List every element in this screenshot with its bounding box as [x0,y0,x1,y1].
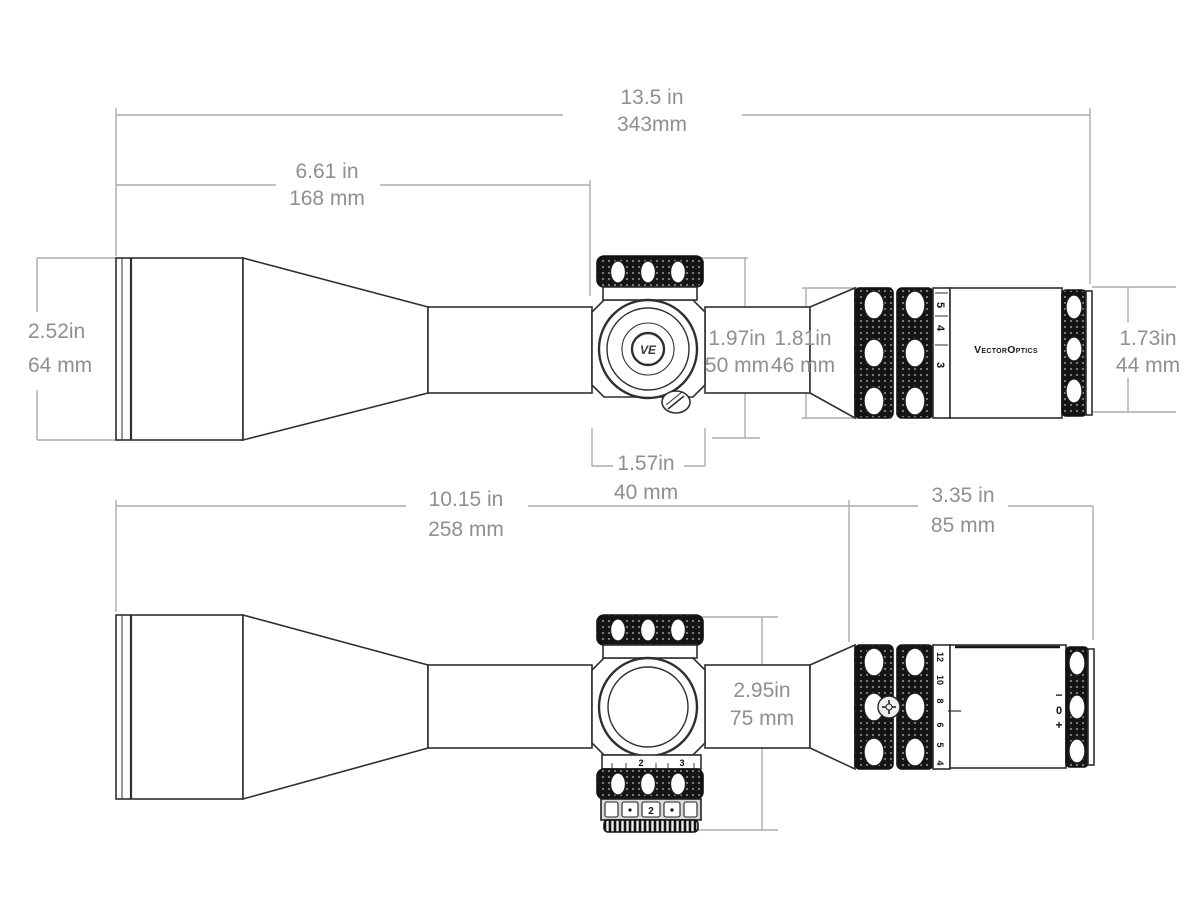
top-view-drawing: 2 3 2 [116,615,1094,832]
svg-text:10: 10 [935,675,945,685]
svg-text:6: 6 [935,722,945,727]
svg-text:5: 5 [934,302,946,308]
ring-screw [878,696,900,718]
windage-turret-top [597,615,703,658]
svg-text:+: + [1055,718,1062,732]
turret-click-number: 2 [648,806,654,817]
magnification-scale: 5 4 3 [933,288,950,418]
svg-text:5: 5 [935,742,945,747]
windage-turret: VE [599,300,697,398]
diopter-ring-top [1066,647,1088,767]
svg-text:4: 4 [934,325,946,332]
side-view-drawing: VE 5 4 3 VectorOptics [116,256,1092,440]
main-tube [428,307,592,393]
diopter-ring [1062,290,1086,416]
elevation-turret-top: 2 3 2 [597,755,703,832]
svg-text:12: 12 [935,652,945,662]
dim-ocular-diameter: 1.73in 44 mm [1100,325,1196,379]
svg-text:3: 3 [934,362,946,368]
scope-dimension-diagram: VE 5 4 3 VectorOptics [0,0,1200,900]
dim-turret-width: 1.57in 40 mm [586,449,706,507]
dim-objective-diameter: 2.52in 64 mm [28,315,138,383]
magnification-ring [855,288,933,418]
dim-overall-length: 13.5 in 343mm [562,84,742,138]
svg-text:8: 8 [935,698,945,703]
parallax-turret [599,658,697,756]
brand-text: VectorOptics [974,344,1038,356]
eyepiece-end-cap-top [1088,649,1094,765]
svg-text:4: 4 [935,760,945,765]
turret-screw [662,391,690,413]
main-tube-top [428,665,592,748]
turret-scale-number: 2 [638,758,643,768]
objective-taper [243,258,428,440]
svg-text:−: − [1055,688,1062,702]
dim-saddle-height: 2.95in 75 mm [702,677,822,733]
magnification-ring-top [855,645,933,769]
dim-rear-length: 10.15 in 258 mm [376,485,556,545]
eyepiece-body-top [950,645,1066,768]
dim-front-length: 6.61 in 168 mm [237,158,417,212]
eyepiece-end-cap [1086,291,1092,415]
dim-ocular-assembly-length: 3.35 in 85 mm [873,481,1053,541]
dim-housing-diameter: 1.81in 46 mm [758,325,848,379]
objective-bell-top [116,615,243,799]
objective-taper-top [243,615,428,799]
elevation-turret [597,256,703,300]
turret-scale-number: 3 [679,758,684,768]
diopter-marks: − 0 + [1055,688,1062,732]
logo-text: VE [640,343,657,357]
magnification-scale-top: 12 10 8 6 5 4 [933,645,950,769]
svg-text:0: 0 [1056,705,1062,717]
